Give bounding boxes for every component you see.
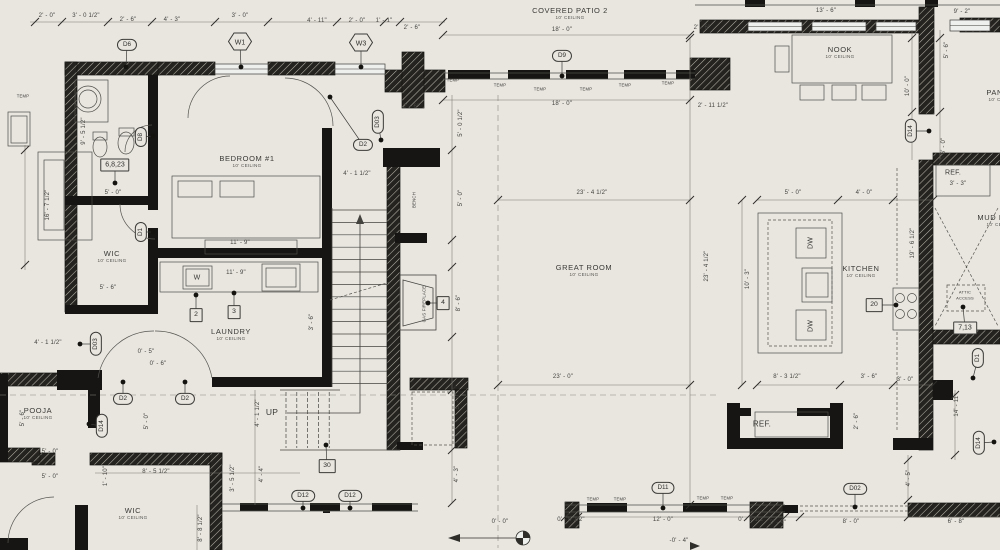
room-ceiling: 10' CEILING [826,54,855,59]
door-tag: D11 [651,482,674,494]
room-ceiling: 10' CEILING [842,273,879,278]
room-ceiling: 10' CEILING [219,163,274,168]
door-tag: D02 [843,483,867,495]
dimension-label: 1' - 10" [103,466,109,486]
dimension-label: 2' - 6" [404,25,421,31]
room-ceiling: 10' CEILING [532,15,608,20]
room-name: POOJA [24,406,53,415]
room-label: NOOK10' CEILING [826,45,855,59]
plan-note: DW [808,320,815,332]
room-name: BEDROOM #1 [219,154,274,163]
room-name: COVERED PATIO 2 [532,6,608,15]
dimension-label: 8' - 5 1/2" [142,469,170,475]
keynote-tag: 20 [866,298,883,312]
annotation-layer: COVERED PATIO 210' CEILINGNOOK10' CEILIN… [0,0,1000,550]
dimension-label: 5' - 0 1/2" [458,109,464,137]
dimension-label: 4' - 3" [164,17,181,23]
dimension-label: 4' - 1 1/2" [343,171,371,177]
room-label: GREAT ROOM10' CEILING [556,263,613,277]
door-tag: D2 [353,139,373,151]
room-label: WIC10' CEILING [119,506,148,520]
dimension-label: 11' - 9" [226,270,246,276]
dimension-label: 2' - 0" [39,13,56,19]
door-tag: D1 [135,222,147,242]
door-tag: D6 [117,39,137,51]
dimension-label: 3' - 0" [897,377,914,383]
door-tag: D14 [905,119,917,143]
keynote-tag: 3 [228,305,241,319]
dimension-label: 3' - 5 1/2" [230,464,236,492]
door-tag: D03 [90,332,102,356]
room-ceiling: 10' CEILING [119,515,148,520]
dimension-label: 5' - 6" [944,42,950,59]
dimension-label: 4' - 0" [856,190,873,196]
dimension-label: 11' - 9" [230,240,250,246]
dimension-label: 4' - 4" [259,466,265,483]
dimension-label: 5' - 0" [42,449,59,455]
dimension-label: 0' - 6" [150,361,167,367]
dimension-label: 2' - 6" [120,17,137,23]
temp-glazing-note: TEMP [580,87,592,92]
temp-glazing-note: TEMP [697,496,709,501]
room-name: WIC [98,249,127,258]
room-ceiling: 10' CEILING [556,272,613,277]
dimension-label: 5' - 0" [42,474,59,480]
dimension-label: 2' - 11 1/2" [698,103,729,109]
room-ceiling: 10' CEILING [986,97,1000,102]
room-name: LAUNDRY [211,327,251,336]
dimension-label: 0' - 6 1/2" [738,517,766,523]
dimension-label: 10' - 0" [905,76,911,96]
temp-glazing-note: TEMP [619,83,631,88]
dimension-label: 3' - 6" [861,374,878,380]
dimension-label: 2' - 6" [694,25,711,31]
dimension-label: 19' - 6 1/2" [910,227,916,258]
temp-glazing-note: TEMP [447,78,459,83]
keynote-tag: 6,8,23 [100,159,129,172]
room-name: KITCHEN [842,264,879,273]
dimension-label: 12' - 0" [653,517,673,523]
door-tag: D9 [552,50,572,62]
room-label: MUD ROOM10' CEILING [977,213,1000,227]
window-tag: W3 [348,33,374,58]
dimension-label: 6' - 0" [941,138,947,155]
plan-note: BENCH [412,192,417,208]
keynote-tag: 7,13 [953,322,977,335]
room-ceiling: 10' CEILING [24,415,53,420]
dimension-label: 10' - 3" [745,269,751,289]
door-tag: D2 [113,393,133,405]
dimension-label: 5' - 0" [455,393,461,410]
plan-note: W [194,275,201,282]
door-tag: D1 [972,348,984,368]
dimension-label: 8' - 8 1/2" [198,514,204,542]
dimension-label: 5' - 0" [105,190,122,196]
dimension-label: 4' - 11" [307,18,327,24]
dimension-label: 2' - 0" [349,18,366,24]
room-label: COVERED PATIO 210' CEILING [532,6,608,20]
plan-note: DW [808,237,815,249]
plan-note: GAS FIREPLACE [422,286,427,323]
room-name: WIC [119,506,148,515]
dimension-label: 4' - 5" [906,470,912,487]
floor-plan-sheet: COVERED PATIO 210' CEILINGNOOK10' CEILIN… [0,0,1000,550]
plan-note: ATTIC [959,290,971,295]
dimension-label: 6' - 8" [948,519,965,525]
room-label: PANTRY10' CEILING [986,88,1000,102]
dimension-label: 5' - 0" [144,413,150,430]
dimension-label: 2' - 4" [770,520,787,526]
dimension-label: 3' - 0 1/2" [72,13,100,19]
dimension-label: 23' - 4 1/2" [704,250,710,281]
room-label: KITCHEN10' CEILING [842,264,879,278]
dimension-label: 3' - 3" [950,181,967,187]
dimension-label: 2' - 6" [854,413,860,430]
room-label: WIC10' CEILING [98,249,127,263]
door-tag: D2 [175,393,195,405]
plan-note: REF. [753,420,771,429]
dimension-label: 5' - 6" [20,410,26,427]
dimension-label: 5' - 6" [100,285,117,291]
plan-note: ACCESS [956,296,974,301]
dimension-label: 9' - 2" [954,9,971,15]
dimension-label: 5' - 0" [785,190,802,196]
dimension-label: 8' - 6" [456,295,462,312]
door-tag: D03 [372,110,384,134]
room-label: POOJA10' CEILING [24,406,53,420]
dimension-label: 4' - 1 1/2" [34,340,62,346]
room-label: BEDROOM #110' CEILING [219,154,274,168]
dimension-label: 23' - 4 1/2" [576,190,607,196]
svg-text:W3: W3 [356,41,367,48]
room-name: MUD ROOM [977,213,1000,222]
dimension-label: 0' - 0" [492,519,509,525]
dimension-label: 23' - 0" [553,374,573,380]
dimension-label: 4' - 1 1/2" [255,399,261,427]
dimension-label: 5' - 0" [458,190,464,207]
room-name: PANTRY [986,88,1000,97]
dimension-label: 8' - 0" [843,519,860,525]
keynote-tag: 2 [190,308,203,322]
door-tag: D8 [135,127,147,147]
svg-text:W1: W1 [235,40,246,47]
room-name: GREAT ROOM [556,263,613,272]
temp-glazing-note: TEMP [614,497,626,502]
room-name: NOOK [826,45,855,54]
dimension-label: 0' - 6 1/2" [557,517,585,523]
plan-note: REF. [945,170,961,177]
dimension-label: -0' - 4" [670,538,689,544]
door-tag: D14 [973,431,985,455]
dimension-label: 18' - 0" [552,101,572,107]
temp-glazing-note: TEMP [587,497,599,502]
door-tag: D12 [291,490,315,502]
room-ceiling: 10' CEILING [211,336,251,341]
dimension-label: 4' - 3" [454,466,460,483]
temp-glazing-note: TEMP [534,87,546,92]
dimension-label: 13' - 6" [816,8,836,14]
room-ceiling: 10' CEILING [98,258,127,263]
temp-glazing-note: TEMP [662,81,674,86]
door-tag: D14 [96,414,108,438]
keynote-tag: 30 [319,459,336,473]
room-ceiling: 10' CEILING [977,222,1000,227]
plan-note: UP [266,407,278,417]
dimension-label: 8' - 3 1/2" [773,374,801,380]
dimension-label: 16' - 7 1/2" [45,189,51,220]
temp-glazing-note: TEMP [17,94,29,99]
dimension-label: 2' - 6" [403,104,420,110]
window-tag: W1 [227,32,253,57]
temp-glazing-note: TEMP [494,83,506,88]
room-label: LAUNDRY10' CEILING [211,327,251,341]
dimension-label: 18' - 0" [552,27,572,33]
dimension-label: 3' - 6" [309,314,315,331]
keynote-tag: 4 [437,296,450,310]
door-tag: D12 [338,490,362,502]
dimension-label: 9' - 5 1/2" [81,117,87,145]
temp-glazing-note: TEMP [721,496,733,501]
dimension-label: 3' - 0" [232,13,249,19]
dimension-label: 0' - 5" [138,349,155,355]
dimension-label: 14' - 11" [954,393,960,416]
dimension-label: 1' - 1" [376,18,393,24]
